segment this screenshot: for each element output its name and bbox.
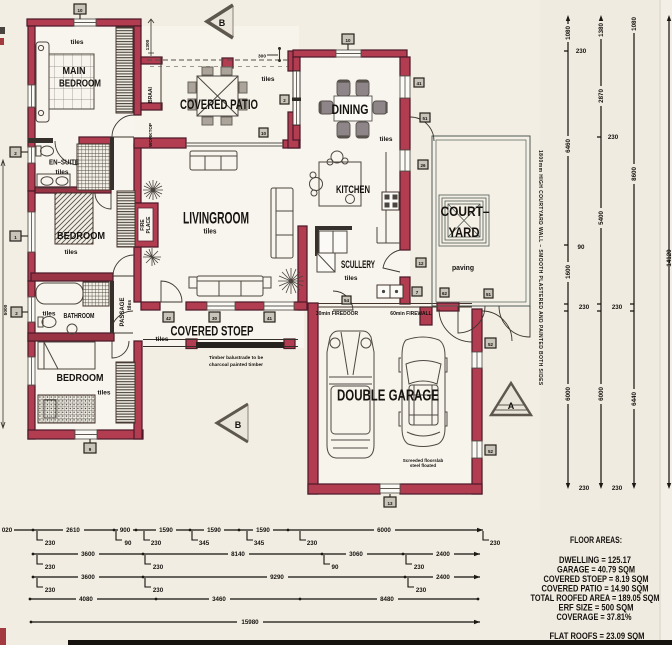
- svg-text:230: 230: [576, 48, 587, 55]
- svg-text:345: 345: [254, 540, 265, 547]
- svg-text:52: 52: [488, 342, 494, 347]
- svg-text:steel floated: steel floated: [410, 463, 437, 468]
- svg-text:345: 345: [199, 540, 210, 547]
- svg-text:3460: 3460: [212, 596, 226, 603]
- svg-text:paving: paving: [452, 265, 474, 272]
- svg-text:230: 230: [612, 485, 623, 492]
- svg-text:8140: 8140: [231, 551, 245, 558]
- svg-text:tiles: tiles: [65, 249, 78, 256]
- svg-text:EN–SUITE: EN–SUITE: [49, 160, 79, 167]
- svg-text:3600: 3600: [81, 574, 95, 581]
- svg-text:COVERAGE = 37.81%: COVERAGE = 37.81%: [557, 612, 632, 622]
- svg-text:COVERED STOEP: COVERED STOEP: [171, 323, 254, 339]
- svg-text:FLAT ROOFS = 23.09 SQM: FLAT ROOFS = 23.09 SQM: [550, 631, 645, 641]
- svg-text:1590: 1590: [256, 527, 270, 534]
- svg-text:60min FIREWALL: 60min FIREWALL: [390, 311, 431, 317]
- svg-text:30: 30: [212, 316, 218, 321]
- svg-text:tiles: tiles: [43, 311, 56, 318]
- svg-text:41: 41: [267, 316, 273, 321]
- svg-text:6460: 6460: [565, 139, 572, 153]
- svg-text:230: 230: [608, 134, 619, 141]
- svg-text:10: 10: [77, 8, 83, 13]
- svg-text:51: 51: [422, 116, 428, 121]
- svg-text:10: 10: [261, 131, 267, 136]
- svg-text:YARD: YARD: [449, 224, 480, 240]
- svg-text:COVERED STOEP = 8.19 SQM: COVERED STOEP = 8.19 SQM: [544, 574, 649, 584]
- svg-text:30min FIREDOOR: 30min FIREDOOR: [316, 311, 359, 317]
- svg-text:10: 10: [345, 38, 351, 43]
- svg-text:B: B: [219, 18, 226, 28]
- svg-text:charcoal painted timber: charcoal painted timber: [209, 362, 263, 368]
- svg-text:COURT–: COURT–: [441, 203, 490, 219]
- svg-text:BRAAI: BRAAI: [148, 86, 154, 102]
- svg-text:90: 90: [578, 244, 585, 251]
- svg-text:13: 13: [387, 501, 393, 506]
- svg-text:230: 230: [45, 564, 56, 571]
- svg-text:41: 41: [416, 81, 422, 86]
- svg-text:KITCHEN: KITCHEN: [336, 184, 370, 196]
- svg-text:300: 300: [258, 54, 266, 60]
- svg-text:COVERED PATIO: COVERED PATIO: [180, 96, 258, 112]
- svg-text:230: 230: [490, 540, 501, 547]
- svg-text:tiles: tiles: [127, 300, 133, 310]
- svg-text:tiles: tiles: [156, 336, 169, 343]
- svg-text:WORKTOP: WORKTOP: [148, 123, 153, 147]
- svg-text:2400: 2400: [436, 551, 450, 558]
- svg-text:1600: 1600: [565, 265, 572, 279]
- svg-text:1590: 1590: [159, 527, 173, 534]
- svg-text:Timber balustrade to be: Timber balustrade to be: [209, 355, 264, 361]
- svg-text:tiles: tiles: [71, 39, 84, 46]
- svg-text:tiles: tiles: [56, 169, 69, 176]
- svg-text:6000: 6000: [565, 387, 572, 401]
- svg-text:3600: 3600: [81, 551, 95, 558]
- svg-text:tiles: tiles: [204, 229, 217, 236]
- svg-text:020: 020: [2, 527, 13, 534]
- svg-text:230: 230: [579, 485, 590, 492]
- svg-text:900: 900: [120, 527, 131, 534]
- svg-text:PLACE: PLACE: [146, 216, 152, 234]
- svg-text:230: 230: [612, 304, 623, 311]
- svg-text:51: 51: [486, 292, 492, 297]
- svg-text:COVERED PATIO = 14.90 SQM: COVERED PATIO = 14.90 SQM: [542, 584, 649, 594]
- svg-text:230: 230: [307, 540, 318, 547]
- svg-text:TOTAL ROOFED AREA = 189.05 SQM: TOTAL ROOFED AREA = 189.05 SQM: [531, 593, 660, 603]
- svg-text:5000: 5000: [3, 304, 9, 315]
- svg-text:A: A: [508, 401, 515, 411]
- svg-text:1300: 1300: [145, 39, 151, 50]
- svg-text:230: 230: [151, 540, 162, 547]
- svg-text:52: 52: [488, 449, 494, 454]
- svg-text:3060: 3060: [349, 551, 363, 558]
- svg-text:90: 90: [332, 564, 339, 571]
- svg-text:tiles: tiles: [345, 275, 358, 282]
- svg-text:6000: 6000: [598, 387, 605, 401]
- svg-text:BEDROOM: BEDROOM: [57, 231, 105, 242]
- svg-text:4080: 4080: [79, 596, 93, 603]
- svg-text:5400: 5400: [598, 211, 605, 225]
- svg-text:230: 230: [153, 564, 164, 571]
- svg-text:230: 230: [414, 564, 425, 571]
- svg-text:DINING: DINING: [332, 101, 369, 117]
- svg-text:MAIN: MAIN: [63, 66, 86, 77]
- svg-text:9290: 9290: [270, 574, 284, 581]
- svg-text:1590: 1590: [207, 527, 221, 534]
- svg-text:BEDROOM: BEDROOM: [59, 79, 101, 90]
- svg-text:230: 230: [579, 304, 590, 311]
- svg-text:1080: 1080: [565, 26, 572, 40]
- svg-text:2400: 2400: [436, 574, 450, 581]
- svg-text:ERF SIZE = 500 SQM: ERF SIZE = 500 SQM: [559, 603, 634, 613]
- svg-text:2610: 2610: [66, 527, 80, 534]
- svg-text:230: 230: [45, 540, 56, 547]
- svg-text:FLOOR AREAS:: FLOOR AREAS:: [570, 535, 622, 545]
- svg-text:15980: 15980: [241, 619, 259, 626]
- svg-text:62: 62: [442, 291, 448, 296]
- svg-text:tiles: tiles: [98, 390, 111, 397]
- svg-text:8600: 8600: [631, 167, 638, 181]
- svg-text:1800mm HIGH COURTYARD WALL – S: 1800mm HIGH COURTYARD WALL – SMOOTH PLAS…: [537, 150, 543, 386]
- svg-text:6440: 6440: [631, 392, 638, 406]
- svg-text:B: B: [235, 420, 242, 430]
- svg-text:1380: 1380: [598, 23, 605, 37]
- svg-text:BATHROOM: BATHROOM: [64, 313, 95, 320]
- svg-text:230: 230: [416, 587, 427, 594]
- svg-text:tiles: tiles: [380, 136, 393, 143]
- svg-text:8480: 8480: [380, 596, 394, 603]
- svg-text:14120: 14120: [666, 249, 672, 267]
- svg-text:6000: 6000: [377, 527, 391, 534]
- svg-text:PASSAGE: PASSAGE: [120, 298, 126, 327]
- svg-text:1080: 1080: [631, 17, 638, 31]
- svg-text:12: 12: [418, 261, 424, 266]
- svg-text:SCULLERY: SCULLERY: [341, 259, 375, 271]
- svg-text:42: 42: [166, 316, 172, 321]
- svg-text:26: 26: [420, 163, 426, 168]
- svg-text:DOUBLE GARAGE: DOUBLE GARAGE: [337, 388, 439, 405]
- svg-text:GARAGE = 40.79 SQM: GARAGE = 40.79 SQM: [557, 565, 635, 575]
- svg-text:BEDROOM: BEDROOM: [57, 373, 104, 384]
- svg-text:230: 230: [45, 587, 56, 594]
- svg-text:DWELLING = 125.17: DWELLING = 125.17: [559, 555, 631, 565]
- svg-text:90: 90: [125, 540, 132, 547]
- svg-text:LIVINGROOM: LIVINGROOM: [183, 209, 249, 228]
- svg-text:tiles: tiles: [262, 76, 275, 83]
- svg-text:54: 54: [344, 298, 350, 303]
- svg-text:2870: 2870: [598, 89, 605, 103]
- svg-text:230: 230: [153, 587, 164, 594]
